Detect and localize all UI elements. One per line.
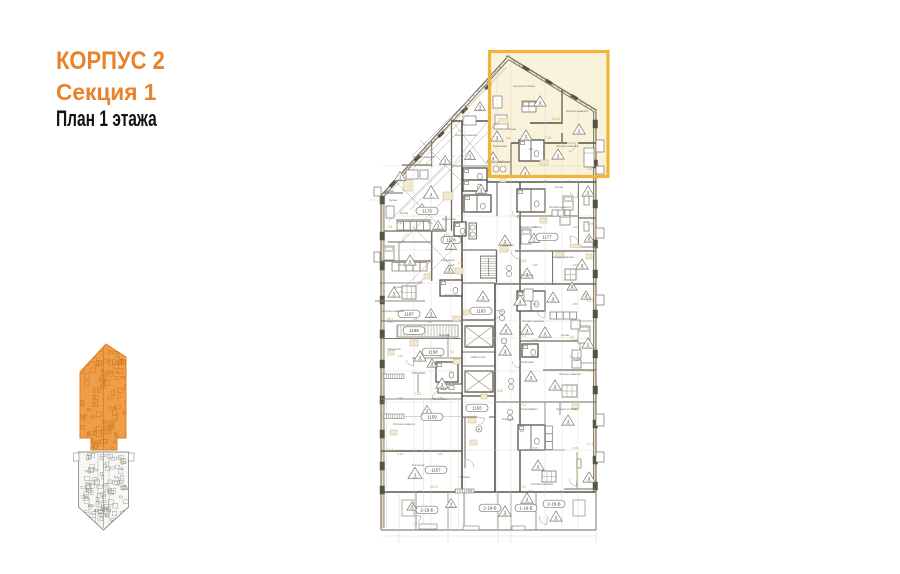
svg-text:2,80: 2,80 bbox=[572, 302, 578, 306]
svg-text:Гостиная: Гостиная bbox=[412, 463, 425, 467]
svg-text:3,00: 3,00 bbox=[572, 338, 578, 342]
svg-text:P: P bbox=[478, 427, 481, 432]
svg-text:3,22: 3,22 bbox=[532, 302, 538, 306]
svg-text:1193: 1193 bbox=[472, 406, 482, 411]
svg-text:3,12: 3,12 bbox=[397, 354, 403, 358]
svg-text:15.6: 15.6 bbox=[587, 369, 594, 373]
svg-text:2,5: 2,5 bbox=[543, 179, 547, 183]
svg-text:10.9: 10.9 bbox=[587, 222, 594, 226]
svg-text:2-19-Б: 2-19-Б bbox=[420, 508, 433, 513]
svg-text:2,40: 2,40 bbox=[572, 263, 578, 267]
svg-text:9.7: 9.7 bbox=[522, 485, 527, 489]
svg-text:2,95: 2,95 bbox=[532, 263, 538, 267]
svg-text:1158: 1158 bbox=[428, 350, 438, 355]
svg-text:Жилая комната: Жилая комната bbox=[455, 133, 477, 137]
svg-text:3,55: 3,55 bbox=[387, 320, 393, 324]
svg-text:Тамбур: Тамбур bbox=[460, 475, 471, 479]
svg-text:4.6: 4.6 bbox=[506, 136, 511, 140]
svg-text:Гардероб: Гардероб bbox=[387, 347, 400, 351]
svg-text:3,3: 3,3 bbox=[418, 489, 422, 493]
svg-text:5.2: 5.2 bbox=[450, 350, 455, 354]
svg-text:Кухня: Кухня bbox=[561, 333, 569, 337]
svg-text:1187: 1187 bbox=[404, 312, 414, 317]
svg-text:8.8: 8.8 bbox=[522, 259, 527, 263]
svg-text:3.8: 3.8 bbox=[388, 225, 393, 229]
svg-text:2,55: 2,55 bbox=[437, 396, 443, 400]
svg-text:Прихожая: Прихожая bbox=[493, 144, 507, 148]
svg-text:2,64: 2,64 bbox=[532, 338, 538, 342]
svg-text:Жилая комната: Жилая комната bbox=[531, 482, 553, 486]
svg-text:2,31: 2,31 bbox=[397, 221, 403, 225]
svg-text:3,10: 3,10 bbox=[572, 225, 578, 229]
svg-text:2.0: 2.0 bbox=[442, 227, 447, 231]
svg-text:3,18: 3,18 bbox=[397, 452, 403, 456]
svg-text:Коридор: Коридор bbox=[502, 417, 514, 421]
svg-text:2,76: 2,76 bbox=[572, 446, 578, 450]
svg-text:Кухня: Кухня bbox=[386, 189, 394, 193]
svg-text:С/у: С/у bbox=[520, 429, 525, 433]
svg-text:Лоджия: Лоджия bbox=[439, 333, 450, 337]
svg-text:Кухня: Кухня bbox=[400, 211, 408, 215]
svg-text:17.2: 17.2 bbox=[415, 160, 422, 164]
svg-text:Коридор: Коридор bbox=[502, 243, 514, 247]
svg-text:2,72: 2,72 bbox=[532, 225, 538, 229]
svg-text:Жилая комната: Жилая комната bbox=[393, 422, 415, 426]
svg-text:3,94: 3,94 bbox=[397, 263, 403, 267]
svg-text:14.8: 14.8 bbox=[415, 392, 422, 396]
svg-text:7.4: 7.4 bbox=[522, 334, 527, 338]
svg-text:Жилая комната: Жилая комната bbox=[559, 372, 581, 376]
svg-text:2,05: 2,05 bbox=[467, 489, 473, 493]
svg-text:2,33: 2,33 bbox=[572, 407, 578, 411]
svg-text:1179: 1179 bbox=[422, 209, 432, 214]
svg-text:2,60: 2,60 bbox=[437, 452, 443, 456]
svg-text:Жилая комната: Жилая комната bbox=[549, 205, 571, 209]
svg-text:16.94: 16.94 bbox=[552, 117, 560, 121]
svg-text:Кухня: Кухня bbox=[555, 185, 563, 189]
svg-text:1,68: 1,68 bbox=[449, 263, 455, 267]
svg-text:1157: 1157 bbox=[431, 468, 441, 473]
svg-text:0.8: 0.8 bbox=[413, 317, 418, 321]
svg-text:7.19: 7.19 bbox=[545, 136, 552, 140]
svg-text:1.9: 1.9 bbox=[458, 261, 463, 265]
svg-text:Гостиная: Гостиная bbox=[521, 273, 534, 277]
svg-text:2,10: 2,10 bbox=[417, 280, 423, 284]
svg-text:1159: 1159 bbox=[427, 415, 437, 420]
svg-text:1,90: 1,90 bbox=[437, 354, 443, 358]
svg-text:Прихожая: Прихожая bbox=[442, 217, 456, 221]
svg-text:2-19-Б: 2-19-Б bbox=[483, 506, 496, 511]
svg-text:9.4: 9.4 bbox=[588, 167, 593, 171]
svg-text:Жилая комната: Жилая комната bbox=[522, 319, 544, 323]
svg-text:3,42: 3,42 bbox=[527, 489, 533, 493]
svg-text:Жилая комната: Жилая комната bbox=[382, 309, 404, 313]
svg-text:1177: 1177 bbox=[542, 235, 552, 240]
svg-text:Кухня: Кухня bbox=[389, 198, 397, 202]
svg-text:Гардероб: Гардероб bbox=[441, 258, 454, 262]
svg-text:Кладовая: Кладовая bbox=[445, 293, 459, 297]
svg-text:3.3: 3.3 bbox=[522, 403, 527, 407]
svg-text:Кухня: Кухня bbox=[508, 127, 516, 131]
svg-text:Кухня-гостиная: Кухня-гостиная bbox=[513, 84, 535, 88]
svg-text:Жилая комната: Жилая комната bbox=[413, 155, 435, 159]
svg-text:2-18-Б: 2-18-Б bbox=[547, 502, 560, 507]
svg-text:Лифт.холл: Лифт.холл bbox=[471, 355, 486, 359]
svg-text:3.60: 3.60 bbox=[497, 389, 504, 393]
svg-text:3,05: 3,05 bbox=[427, 221, 433, 225]
svg-text:13.1: 13.1 bbox=[587, 442, 594, 446]
svg-text:12.2: 12.2 bbox=[587, 299, 594, 303]
svg-text:1,8: 1,8 bbox=[488, 179, 492, 183]
svg-text:3,40: 3,40 bbox=[397, 396, 403, 400]
svg-text:Кухня: Кухня bbox=[394, 285, 402, 289]
svg-text:11.57: 11.57 bbox=[496, 160, 504, 164]
svg-text:2,90: 2,90 bbox=[532, 407, 538, 411]
svg-text:1183: 1183 bbox=[476, 309, 486, 314]
svg-text:3,15: 3,15 bbox=[532, 446, 538, 450]
svg-text:12.6: 12.6 bbox=[427, 259, 434, 263]
svg-text:С/у: С/у bbox=[529, 147, 534, 151]
svg-text:1-19-Б: 1-19-Б bbox=[519, 506, 532, 511]
svg-text:40.91: 40.91 bbox=[430, 485, 438, 489]
svg-text:Жилая комната: Жилая комната bbox=[566, 109, 588, 113]
svg-text:3,2: 3,2 bbox=[568, 179, 572, 183]
svg-text:1189: 1189 bbox=[409, 328, 419, 333]
svg-text:Жилая комната: Жилая комната bbox=[552, 255, 574, 259]
svg-text:2,9: 2,9 bbox=[558, 489, 562, 493]
svg-text:Жилая комната: Жилая комната bbox=[520, 225, 542, 229]
svg-text:Прихожая: Прихожая bbox=[520, 360, 534, 364]
svg-text:2,87: 2,87 bbox=[427, 320, 433, 324]
svg-text:11.3: 11.3 bbox=[387, 448, 393, 452]
svg-text:Жилая комната: Жилая комната bbox=[556, 144, 578, 148]
